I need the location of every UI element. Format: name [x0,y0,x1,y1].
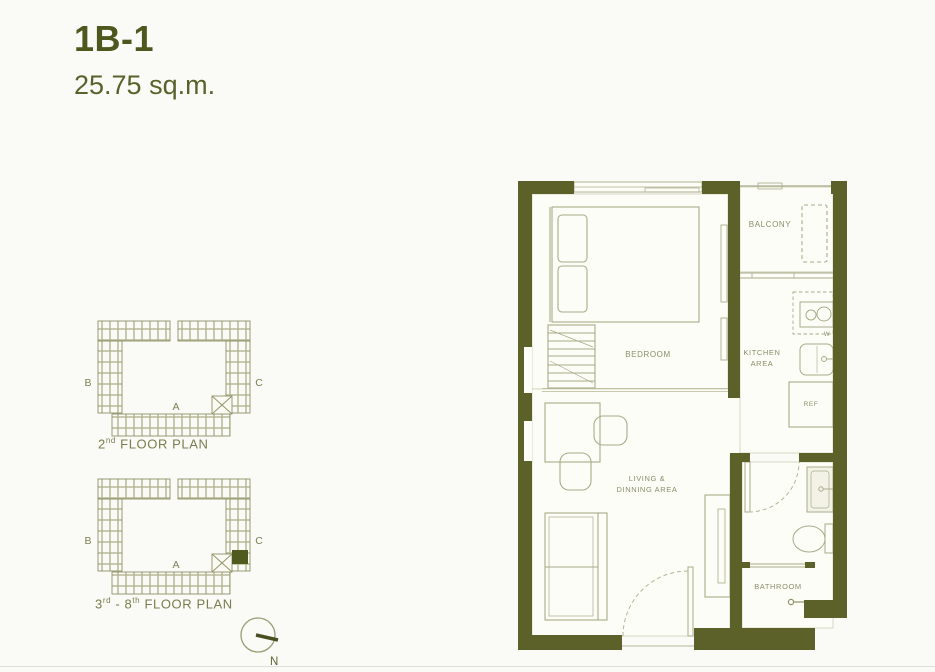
unit-area-text: 25.75 sq.m. [74,70,215,101]
stove-mark: W [824,332,830,338]
kitchen-label-2: AREA [751,359,774,368]
unit-floor-plan: BEDROOM BALCONY KITCHEN AREA LIVING & DI… [512,175,852,660]
balcony-label: BALCONY [749,220,791,229]
living-label-2: DINNING AREA [617,485,678,494]
floor-plan-page: 1B-1 25.75 sq.m. B C [0,0,935,672]
sofa [545,513,607,620]
stair-core [212,554,232,572]
building-wings [98,479,250,594]
stair-core [212,396,232,414]
floor-plan-label-2nd: 2nd FLOOR PLAN [98,436,209,451]
building-wings [98,321,250,436]
kitchen-label: KITCHEN [743,348,780,357]
label-sup: nd [106,436,116,445]
label-rest: FLOOR PLAN [116,436,209,451]
label-num: 2 [98,436,106,451]
building-plan-2nd-floor: B C A [78,318,268,445]
floor-plan-label-3rd-8th: 3rd - 8th FLOOR PLAN [95,596,233,611]
wing-label-c: C [255,535,263,547]
label-num: 3 [95,596,103,611]
wardrobe [548,325,595,388]
bathroom-vanity [807,467,833,512]
fridge-label: REF [804,401,819,408]
building-plan-3rd-8th-floor: B C A [78,476,268,603]
living-label: LIVING & [629,474,665,483]
wing-label-b: B [84,535,91,547]
sliding-panels [721,225,727,360]
label-mid: - 8 [111,596,132,611]
wing-label-a: A [172,401,179,413]
bedroom-window [574,182,702,192]
wing-label-a: A [172,559,179,571]
kitchen-sink [800,344,833,375]
label-rest: FLOOR PLAN [140,596,233,611]
bedroom-label: BEDROOM [625,350,671,359]
compass: N [240,612,300,672]
wing-label-b: B [84,377,91,389]
page-divider [0,666,935,667]
unit-location-highlight [232,550,248,564]
unit-name-title: 1B-1 [74,18,154,60]
bed [550,207,699,322]
tv-cabinet [705,495,730,597]
bathroom-label: BATHROOM [754,582,802,591]
wing-label-c: C [255,377,263,389]
label-sup: rd [103,596,111,605]
toilet [793,524,833,553]
